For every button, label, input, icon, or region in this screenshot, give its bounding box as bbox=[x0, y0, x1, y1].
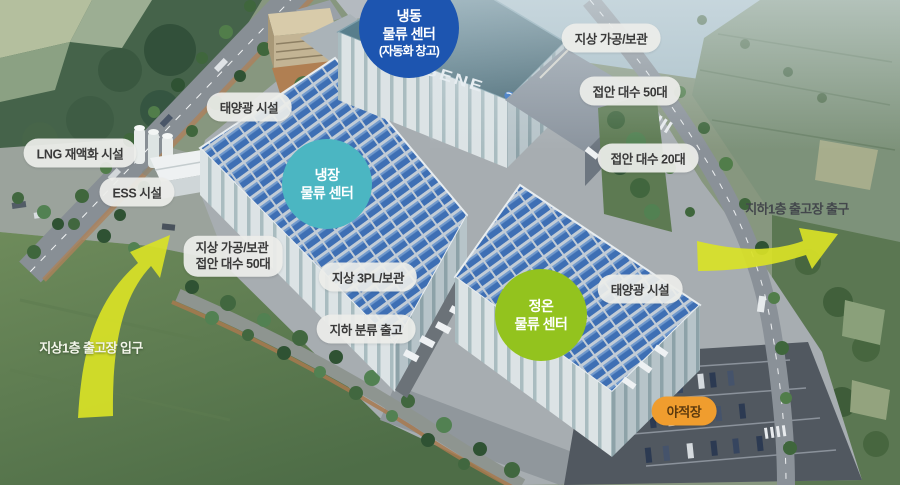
label-ground-3pl-storage: 지상 3PL/보관 bbox=[319, 263, 417, 292]
label-solar-facility-nw: 태양광 시설 bbox=[207, 93, 292, 122]
aerial-site-diagram: EUGENE bbox=[0, 0, 900, 485]
cold-line1: 냉장 bbox=[315, 166, 340, 184]
label-b1-exit: 지하1층 출고장 출구 bbox=[745, 199, 849, 218]
atmospheric-haze bbox=[430, 0, 900, 150]
processing-storage-w-line1: 지상 가공/보관 bbox=[196, 240, 271, 256]
label-processing-storage-w: 지상 가공/보관 접안 대수 50대 bbox=[184, 236, 283, 277]
cold-line2: 물류 센터 bbox=[301, 184, 354, 202]
site-rendering: EUGENE bbox=[0, 0, 900, 485]
label-processing-storage-ne: 지상 가공/보관 bbox=[562, 24, 661, 53]
label-berth-20-e: 접안 대수 20대 bbox=[598, 144, 699, 173]
ambient-line2: 물류 센터 bbox=[515, 315, 568, 333]
label-cold-logistics-center: 냉장 물류 센터 bbox=[282, 139, 372, 229]
label-1f-entrance: 지상1층 출고장 입구 bbox=[39, 338, 143, 357]
frozen-line3: (자동화 창고) bbox=[379, 44, 439, 60]
label-berth-50-ne: 접안 대수 50대 bbox=[580, 77, 681, 106]
ambient-line1: 정온 bbox=[529, 297, 554, 315]
label-solar-facility-se: 태양광 시설 bbox=[598, 275, 683, 304]
label-lng-reliquefaction: LNG 재액화 시설 bbox=[24, 139, 137, 168]
label-ambient-logistics-center: 정온 물류 센터 bbox=[495, 269, 587, 361]
frozen-line1: 냉동 bbox=[397, 7, 422, 25]
label-ess-facility: ESS 시설 bbox=[99, 178, 174, 207]
processing-storage-w-line2: 접안 대수 50대 bbox=[196, 256, 271, 272]
frozen-line2: 물류 센터 bbox=[383, 25, 436, 43]
label-underground-sorting: 지하 분류 출고 bbox=[317, 315, 416, 344]
label-open-yard: 야적장 bbox=[652, 397, 717, 426]
